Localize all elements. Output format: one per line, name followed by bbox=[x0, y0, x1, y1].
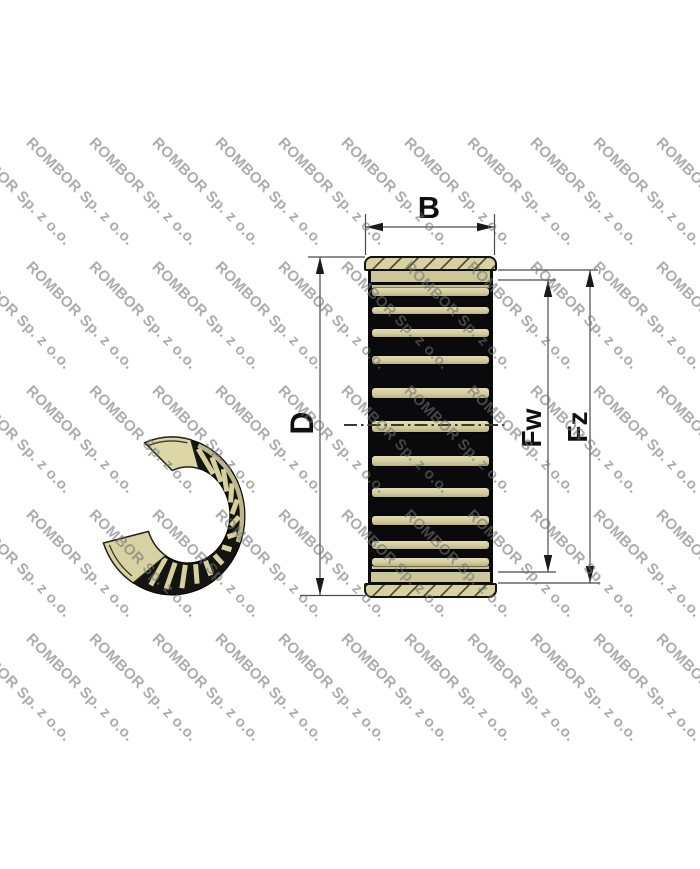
dimension-label-d: D bbox=[283, 402, 321, 444]
dimension-label-b: B bbox=[405, 192, 453, 224]
dimension-label-fz: Fz bbox=[553, 402, 603, 452]
drawing-canvas: { "watermark": { "text": "ROMBOR Sp. z o… bbox=[0, 0, 700, 869]
dimension-label-fw: Fw bbox=[507, 403, 557, 453]
